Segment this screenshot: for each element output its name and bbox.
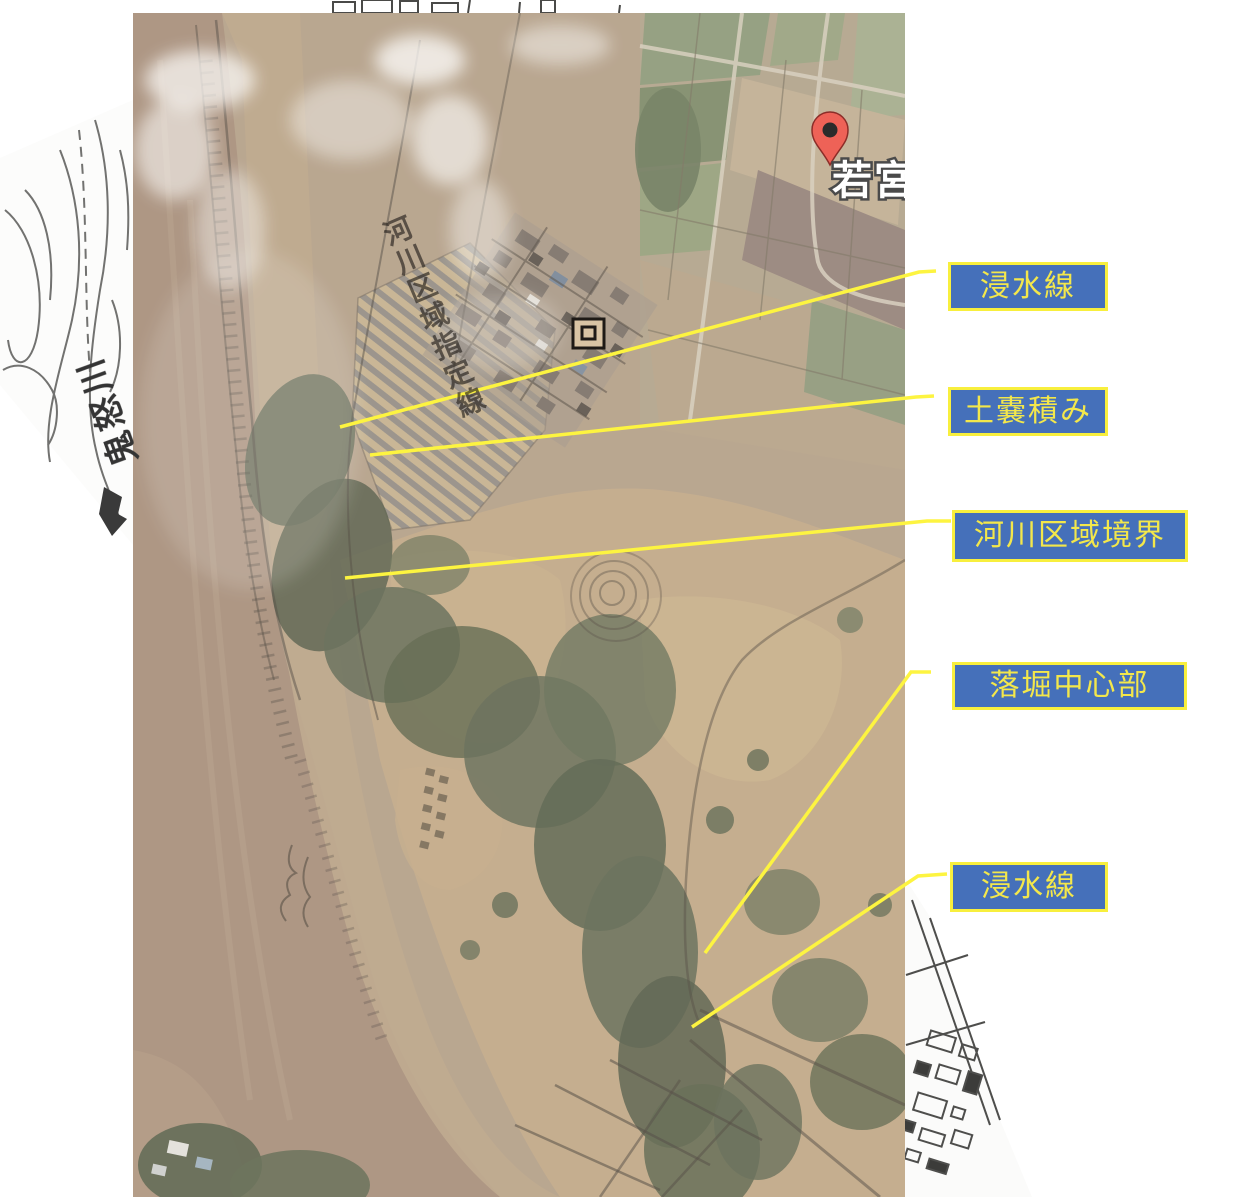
annotation-label-flood-line-bottom: 浸水線	[950, 862, 1108, 912]
base-map-fragment-bottom-right	[888, 878, 1032, 1197]
annotation-label-river-area-border: 河川区域境界	[952, 510, 1188, 562]
aerial-photo: 若宮戸	[133, 13, 958, 1202]
annotation-label-flood-line-top: 浸水線	[948, 262, 1108, 311]
base-map-fragment-left	[0, 100, 133, 545]
annotation-label-sandbag-stack: 土嚢積み	[948, 387, 1108, 436]
annotation-label-scour-pit-center: 落堀中心部	[952, 662, 1187, 710]
nested-square-symbol	[573, 319, 604, 348]
base-map-fragment-top	[333, 0, 620, 13]
page: { "figure": { "description_labels": [ { …	[0, 0, 1244, 1202]
annotated-aerial-map: 若宮戸	[0, 0, 1244, 1202]
pin-place-name: 若宮戸	[832, 159, 958, 203]
